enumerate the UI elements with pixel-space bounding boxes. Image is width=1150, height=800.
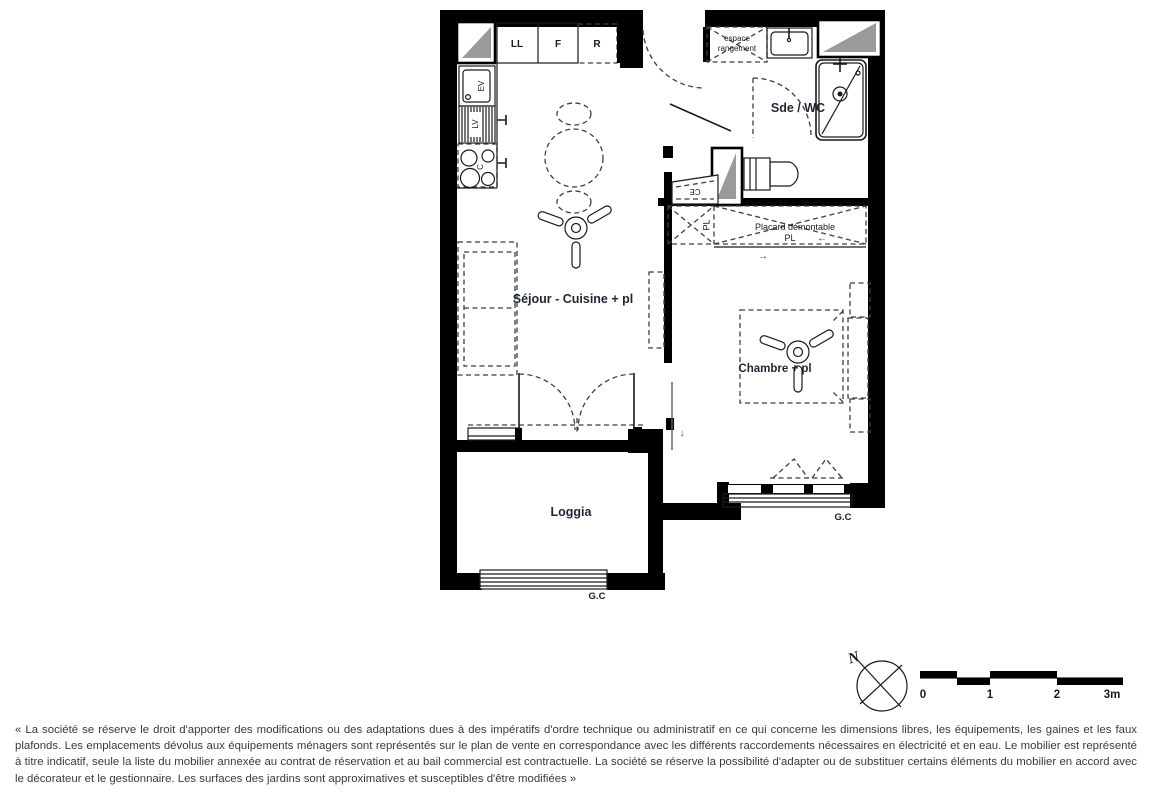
dining-table (545, 103, 603, 213)
floor-plan-page: LL F R EV LV C (0, 0, 1150, 800)
duct-kitchen (457, 22, 495, 63)
small-placard-label: PL (701, 219, 711, 230)
sejour-closet (649, 272, 664, 348)
outlet-icon (497, 158, 506, 168)
scale-tick-3m: 3m (1104, 689, 1121, 701)
scale-bar (920, 671, 1123, 685)
fridge-label: R (593, 39, 601, 50)
sink-label: EV (477, 80, 486, 91)
legal-disclaimer: « La société se réserve le droit d'appor… (15, 722, 1137, 787)
wall-niche-corner (663, 146, 673, 158)
shower (816, 58, 866, 140)
washer-label: LL (511, 39, 523, 50)
chair (557, 103, 591, 125)
wall-partition (664, 206, 672, 363)
loggia-guardrail (480, 570, 607, 589)
wall-niche-jamb (664, 172, 672, 206)
cooktop-label: C (476, 164, 485, 170)
scale-tick-2: 2 (1054, 689, 1060, 701)
wall-sejour-loggia-band (457, 440, 663, 452)
walls (440, 10, 885, 590)
toilet (744, 158, 798, 190)
floor-plan-svg: LL F R EV LV C (0, 0, 1150, 800)
sofa (458, 242, 517, 375)
espace-rangement-label-2: rangement (718, 44, 757, 53)
chair (557, 191, 591, 213)
entry-door-swing (643, 30, 703, 88)
ceiling-light-sejour-icon (537, 205, 613, 268)
water-heater-label: CE (689, 187, 700, 196)
room-label-sde-wc: Sde / WC (771, 101, 825, 115)
wall-door-pocket (666, 418, 674, 430)
door-leaf (670, 104, 731, 131)
duct-bathroom-corner (818, 20, 881, 57)
bay-window (468, 373, 645, 442)
guardrail-label-loggia: G.C (589, 591, 606, 602)
placard-pl-label: PL (784, 233, 795, 243)
chambre-window (723, 459, 852, 507)
wall-bottom-right-corner (850, 483, 885, 508)
room-label-sejour: Séjour - Cuisine + pl (513, 292, 634, 306)
slide-down-arrow-icon: ↓ (680, 428, 685, 439)
nightstand (850, 283, 870, 317)
slide-left-arrow-icon: ← (817, 233, 827, 244)
north-label: N (845, 649, 862, 668)
scale-tick-0: 0 (920, 689, 926, 701)
wall-loggia-bottom-left (440, 573, 482, 590)
scale-tick-1: 1 (987, 689, 994, 701)
guardrail-label-chambre: G.C (835, 512, 852, 523)
placard-demontable-label: Placard démontable (755, 222, 835, 232)
oven-label: F (555, 39, 561, 50)
wall-left (440, 10, 457, 590)
headboard (848, 318, 868, 398)
espace-rangement-label-1: espace (724, 34, 750, 43)
wall-loggia-bottom-right (607, 573, 665, 590)
room-label-chambre: Chambre + pl (738, 363, 811, 375)
ceiling-light-chambre-icon (759, 329, 835, 392)
outlet-icon (497, 115, 506, 125)
nightstand (850, 399, 870, 432)
slide-right-arrow-icon: → (758, 251, 768, 262)
room-label-loggia: Loggia (551, 505, 593, 519)
dishwasher-label: LV (471, 119, 480, 129)
wall-loggia-right (648, 430, 663, 590)
washbasin (767, 28, 812, 58)
